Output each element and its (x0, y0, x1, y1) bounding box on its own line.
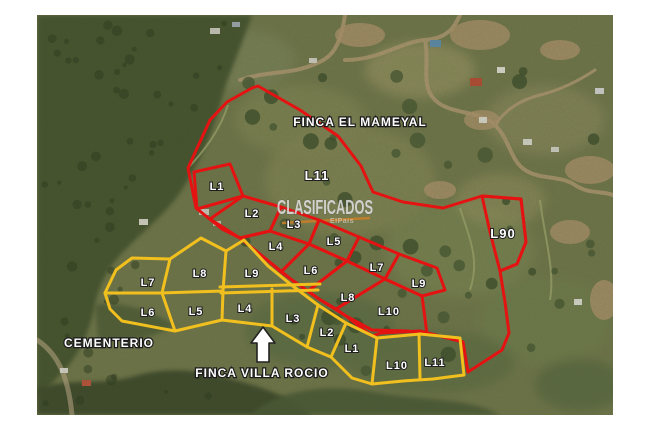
finca-villa-rocio-divider-6 (222, 291, 223, 320)
finca-villa-rocio-lot-label-L7: L7 (141, 277, 156, 289)
finca-el-mameyal-lot-label-L3: L3 (287, 219, 302, 231)
finca-villa-rocio-lot-label-L2: L2 (320, 327, 335, 339)
classified-ad-map-image: L1L2L3L4L5L6L7L8L9L10L11L90FINCA EL MAME… (0, 0, 648, 430)
finca-el-mameyal-name-label: FINCA EL MAMEYAL (293, 115, 427, 129)
finca-el-mameyal-lot-label-L8: L8 (341, 292, 356, 304)
lot-map: L1L2L3L4L5L6L7L8L9L10L11L90FINCA EL MAME… (0, 0, 648, 430)
finca-el-mameyal-lot-label-L10: L10 (378, 306, 400, 318)
finca-villa-rocio-divider-11 (419, 334, 420, 378)
finca-el-mameyal-lot-label-L1: L1 (210, 181, 225, 193)
watermark-subtext: ElPais (330, 218, 354, 225)
finca-villa-rocio-lot-label-L8: L8 (193, 268, 208, 280)
finca-villa-rocio-lot-label-L9: L9 (245, 268, 260, 280)
cementerio-label: CEMENTERIO (64, 336, 154, 350)
finca-el-mameyal-lot-label-L7: L7 (370, 262, 385, 274)
finca-el-mameyal-lot-label-L90: L90 (490, 226, 515, 241)
finca-el-mameyal-lot-label-L6: L6 (304, 265, 319, 277)
finca-el-mameyal-lot-label-L9: L9 (412, 278, 427, 290)
finca-el-mameyal-lot-label-L2: L2 (245, 208, 260, 220)
finca-villa-rocio-name-label: FINCA VILLA ROCIO (195, 366, 328, 380)
finca-el-mameyal-lot-label-L11: L11 (305, 168, 330, 183)
finca-villa-rocio-lot-label-L11: L11 (424, 357, 445, 369)
finca-el-mameyal-lot-label-L5: L5 (327, 236, 342, 248)
finca-villa-rocio-lot-label-L5: L5 (189, 306, 204, 318)
finca-el-mameyal-lot-label-L4: L4 (269, 241, 284, 253)
finca-villa-rocio-lot-label-L3: L3 (286, 313, 301, 325)
watermark-text: CLASIFICADOS (277, 197, 373, 219)
finca-villa-rocio-lot-label-L1: L1 (345, 343, 360, 355)
finca-villa-rocio-lot-label-L6: L6 (141, 307, 156, 319)
finca-villa-rocio-lot-label-L4: L4 (238, 303, 253, 315)
finca-villa-rocio-lot-label-L10: L10 (386, 360, 408, 372)
